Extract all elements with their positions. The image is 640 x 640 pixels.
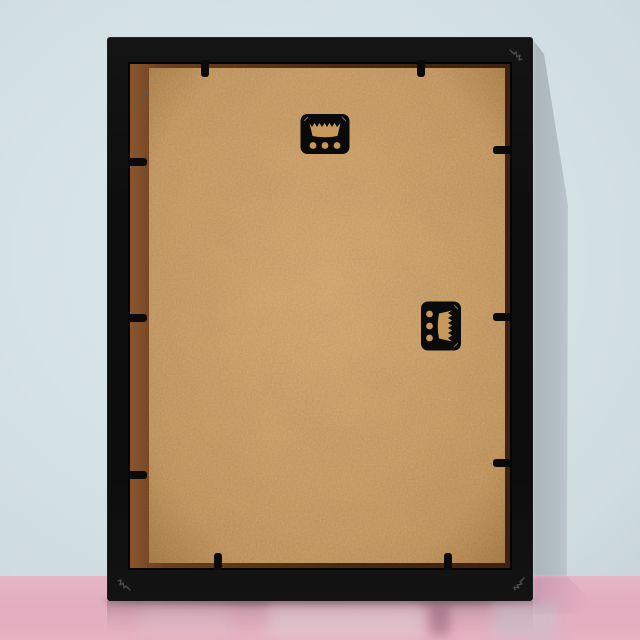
retaining-clip: [214, 553, 222, 570]
retaining-clip: [130, 158, 147, 166]
sawtooth-hanger-icon: [300, 113, 350, 155]
picture-frame-back: [107, 37, 533, 601]
retaining-clip: [201, 60, 209, 77]
corner-staple: [509, 49, 523, 63]
retaining-clip: [130, 471, 147, 479]
staple-icon: [117, 577, 131, 591]
reflection-streak: [140, 607, 230, 637]
retaining-clip: [493, 313, 510, 321]
retaining-clip: [493, 459, 510, 467]
retaining-clip: [444, 553, 452, 570]
reflection-streak: [268, 605, 423, 638]
staple-icon: [511, 577, 525, 591]
staple-icon: [137, 89, 151, 103]
sawtooth-hanger-icon: [420, 301, 462, 351]
reflection-streak: [430, 603, 450, 635]
corner-staple: [117, 577, 131, 591]
retaining-clip: [493, 146, 510, 154]
reflection-streak: [492, 603, 558, 638]
scene: [0, 0, 640, 640]
retaining-clip: [130, 314, 147, 322]
corner-staple: [511, 577, 525, 591]
sawtooth-hanger-top: [300, 113, 350, 155]
staple-icon: [509, 49, 523, 63]
corner-staple: [137, 89, 151, 103]
sawtooth-hanger-side: [420, 301, 462, 351]
retaining-clip: [417, 60, 425, 77]
